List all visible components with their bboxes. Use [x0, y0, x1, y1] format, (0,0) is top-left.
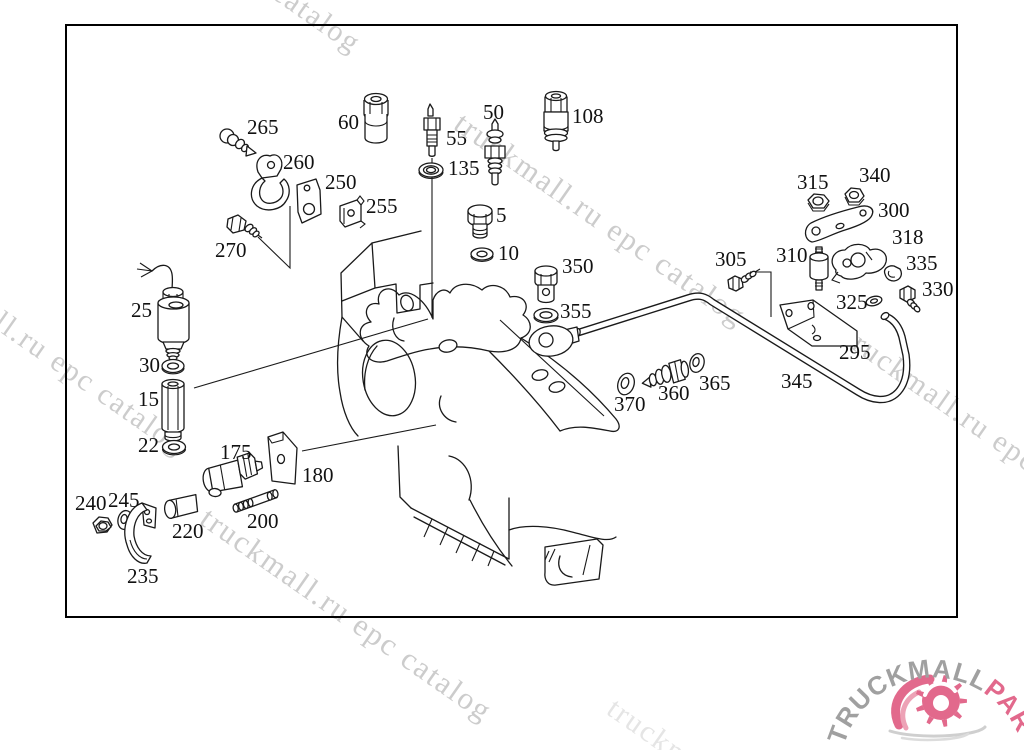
part-label-315-nut: 315: [797, 170, 829, 194]
leader-line-15: [194, 319, 428, 388]
part-label-355-seal-ring: 355: [560, 299, 592, 323]
diagram-page: truckmall.ru epc catalogtruckmall.ru epc…: [0, 0, 1024, 750]
part-220-spacer-sleeve-glyph: [163, 495, 198, 519]
part-15-extension-sleeve-glyph: [162, 380, 184, 442]
part-label-305-bolt: 305: [715, 247, 747, 271]
part-label-260-clamp: 260: [283, 150, 315, 174]
part-label-5-screw-plug: 5: [496, 203, 507, 227]
part-355-seal-ring-glyph: [534, 309, 558, 323]
part-label-10-seal-ring: 10: [498, 241, 519, 265]
part-label-310-damper-mount: 310: [776, 243, 808, 267]
part-335-clip-glyph: [885, 266, 902, 281]
part-label-340-nut: 340: [859, 163, 891, 187]
part-label-255-clip: 255: [366, 194, 398, 218]
part-label-270-bolt: 270: [215, 238, 247, 262]
part-label-335-clip: 335: [906, 251, 938, 275]
part-10-seal-ring-glyph: [471, 248, 493, 261]
part-55-temperature-sensor-glyph: [424, 104, 440, 156]
part-135-seal-ring-glyph: [419, 163, 443, 178]
leader-line-305-295: [750, 272, 771, 317]
part-340-nut-glyph: [845, 188, 864, 205]
part-255-clip-glyph: [340, 196, 365, 228]
part-180-cover-plate-glyph: [268, 432, 297, 484]
part-label-22-seal-ring: 22: [138, 433, 159, 457]
part-label-108-temperature-sensor: 108: [572, 104, 604, 128]
part-label-60-plug-cap: 60: [338, 110, 359, 134]
parts-diagram-canvas: truckmall.ru epc catalogtruckmall.ru epc…: [0, 0, 1024, 750]
leader-line-270-250: [258, 206, 290, 268]
banjo-fitting-glyph: [527, 323, 579, 359]
part-label-350-banjo-bolt: 350: [562, 254, 594, 278]
part-label-370-seal-ring: 370: [614, 392, 646, 416]
part-label-345-pipe: 345: [781, 369, 813, 393]
part-label-295-bracket: 295: [839, 340, 871, 364]
part-5-screw-plug-glyph: [468, 205, 492, 238]
part-60-plug-cap-glyph: [364, 94, 388, 144]
part-label-325-washer: 325: [836, 290, 868, 314]
part-330-bolt-glyph: [900, 286, 921, 313]
part-label-135-seal-ring: 135: [448, 156, 480, 180]
part-label-330-bolt: 330: [922, 277, 954, 301]
watermark-text-3: truckmall.ru epc catalog: [194, 500, 499, 728]
watermark-text-0: truckmall.ru epc catalog: [71, 0, 367, 60]
part-22-seal-ring-glyph: [163, 441, 186, 455]
part-315-nut-glyph: [808, 194, 829, 211]
part-108-temperature-sensor-glyph: [544, 92, 568, 151]
part-310-damper-mount-glyph: [810, 247, 828, 290]
part-label-220-spacer-sleeve: 220: [172, 519, 204, 543]
part-270-bolt-glyph: [227, 215, 262, 238]
part-label-250-bracket-plate: 250: [325, 170, 357, 194]
part-label-240-nut: 240: [75, 491, 107, 515]
part-325-washer-glyph: [865, 295, 883, 308]
part-label-30-seal-ring: 30: [139, 353, 160, 377]
part-label-365-seal-ring: 365: [699, 371, 731, 395]
part-label-265-screw: 265: [247, 115, 279, 139]
part-label-235-clamp-strap: 235: [127, 564, 159, 588]
part-305-bolt-glyph: [728, 269, 760, 291]
part-label-200-stud: 200: [247, 509, 279, 533]
part-240-nut-glyph: [93, 517, 112, 533]
part-label-300-bracket-arm: 300: [878, 198, 910, 222]
part-30-seal-ring-glyph: [162, 360, 184, 374]
part-318-lever-assembly-glyph: [832, 244, 886, 283]
part-label-50-glow-plug: 50: [483, 100, 504, 124]
logo-swoosh-light: [903, 692, 919, 728]
part-label-245-washer: 245: [108, 488, 140, 512]
leader-line-180: [302, 425, 436, 451]
part-350-banjo-bolt-glyph: [535, 266, 557, 303]
part-label-15-extension-sleeve: 15: [138, 387, 159, 411]
part-250-bracket-plate-glyph: [297, 179, 321, 223]
engine-block-drawing: [338, 231, 620, 585]
part-label-175-valve-fitting: 175: [220, 440, 252, 464]
part-label-25-pressure-sender: 25: [131, 298, 152, 322]
part-label-55-temperature-sensor: 55: [446, 126, 467, 150]
part-label-360-valve: 360: [658, 381, 690, 405]
part-label-180-cover-plate: 180: [302, 463, 334, 487]
part-label-318-lever-assembly: 318: [892, 225, 924, 249]
